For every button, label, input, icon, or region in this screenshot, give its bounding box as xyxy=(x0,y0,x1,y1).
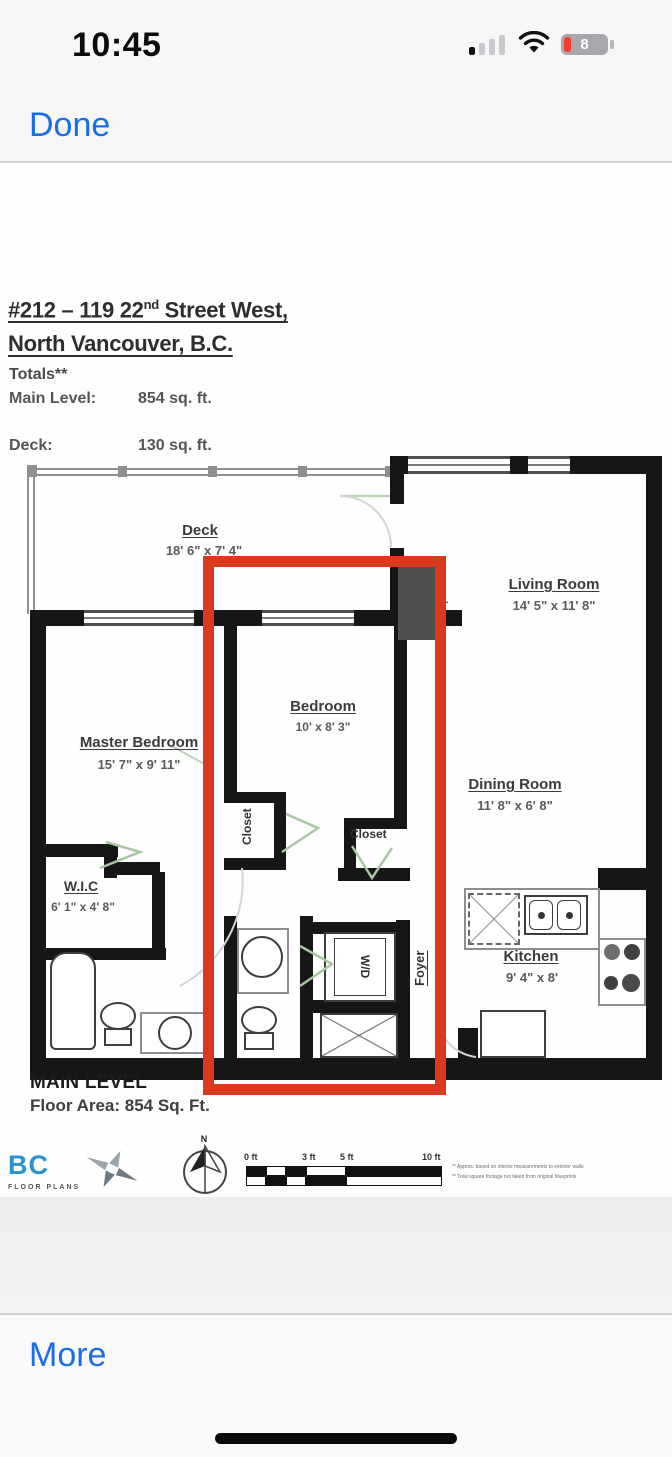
room-dims-living: 14' 5" x 11' 8" xyxy=(500,598,608,613)
deck-total-label: Deck: xyxy=(9,437,53,455)
done-button[interactable]: Done xyxy=(29,106,110,145)
room-dims-wic: 6' 1" x 4' 8" xyxy=(40,900,126,914)
scale-bar xyxy=(246,1166,442,1186)
compass-north-label: N xyxy=(196,1134,212,1144)
burner xyxy=(622,974,640,992)
status-time: 10:45 xyxy=(72,26,161,65)
room-label-living: Living Room xyxy=(498,576,610,593)
room-label-kitchen: Kitchen xyxy=(494,948,568,965)
room-label-deck: Deck xyxy=(160,522,240,539)
window xyxy=(408,456,510,474)
wall xyxy=(152,872,165,956)
highlight-rectangle xyxy=(203,556,446,1095)
railing-post xyxy=(298,466,307,477)
disclaimer-line-1: ** Approx. based on interior measurement… xyxy=(452,1164,652,1171)
fridge xyxy=(480,1010,546,1058)
toilet-tank xyxy=(104,1028,132,1046)
battery-nub xyxy=(610,40,614,49)
sink-drain xyxy=(538,912,545,919)
dishwasher xyxy=(468,893,520,945)
scale-tick: 3 ft xyxy=(302,1152,316,1162)
scale-tick: 10 ft xyxy=(422,1152,441,1162)
wall xyxy=(646,456,662,1080)
room-dims-kitchen: 9' 4" x 8' xyxy=(498,970,566,985)
railing-post xyxy=(27,465,37,477)
screen: 10:45 8 Done #212 – 119 22nd Street West… xyxy=(0,0,672,1457)
burner xyxy=(624,944,640,960)
battery-icon: 8 xyxy=(561,34,608,55)
title-superscript: nd xyxy=(144,297,159,312)
plan-title-line2: North Vancouver, B.C. xyxy=(8,331,233,357)
window xyxy=(84,610,194,626)
title-text: #212 – 119 22 xyxy=(8,297,144,322)
wall xyxy=(458,1028,478,1058)
logo-bc-text: BC xyxy=(8,1150,49,1181)
deck-railing-left xyxy=(27,476,35,614)
sink-drain xyxy=(566,912,573,919)
floor-area: Floor Area: 854 Sq. Ft. xyxy=(30,1096,210,1116)
scale-tick-labels: 0 ft 3 ft 5 ft 10 ft xyxy=(244,1152,444,1166)
wall xyxy=(390,474,404,504)
logo-subtext: FLOOR PLANS xyxy=(8,1184,80,1191)
burner xyxy=(604,944,620,960)
wall xyxy=(30,610,46,1080)
main-level-label: Main Level: xyxy=(9,390,96,408)
room-label-dining: Dining Room xyxy=(460,776,570,793)
compass-icon xyxy=(180,1144,230,1196)
totals-heading: Totals** xyxy=(9,366,67,384)
level-title: MAIN LEVEL xyxy=(30,1072,147,1094)
more-button[interactable]: More xyxy=(29,1336,106,1375)
battery-percent: 8 xyxy=(561,34,608,55)
plan-title-line1: #212 – 119 22nd Street West, xyxy=(8,297,288,323)
room-dims-master: 15' 7" x 9' 11" xyxy=(78,757,200,772)
railing-post xyxy=(118,466,127,477)
room-label-master: Master Bedroom xyxy=(70,734,208,751)
room-label-wic: W.I.C xyxy=(48,878,114,894)
main-level-value: 854 sq. ft. xyxy=(138,390,212,408)
deck-total-value: 130 sq. ft. xyxy=(138,437,212,455)
scale-tick: 5 ft xyxy=(340,1152,354,1162)
page-background-gap xyxy=(0,1197,672,1313)
burner xyxy=(604,976,618,990)
disclaimer-line-2: ** Total square footage not taken from o… xyxy=(452,1174,652,1181)
scale-tick: 0 ft xyxy=(244,1152,258,1162)
room-dims-dining: 11' 8" x 6' 8" xyxy=(463,798,567,813)
title-text-2: Street West, xyxy=(159,297,288,322)
home-indicator[interactable] xyxy=(215,1433,457,1444)
wall xyxy=(598,868,648,890)
bathtub xyxy=(50,952,96,1050)
toilet xyxy=(100,1002,136,1030)
window xyxy=(528,456,570,474)
vanity-sink xyxy=(158,1016,192,1050)
nav-divider xyxy=(0,161,672,163)
railing-post xyxy=(208,466,217,477)
